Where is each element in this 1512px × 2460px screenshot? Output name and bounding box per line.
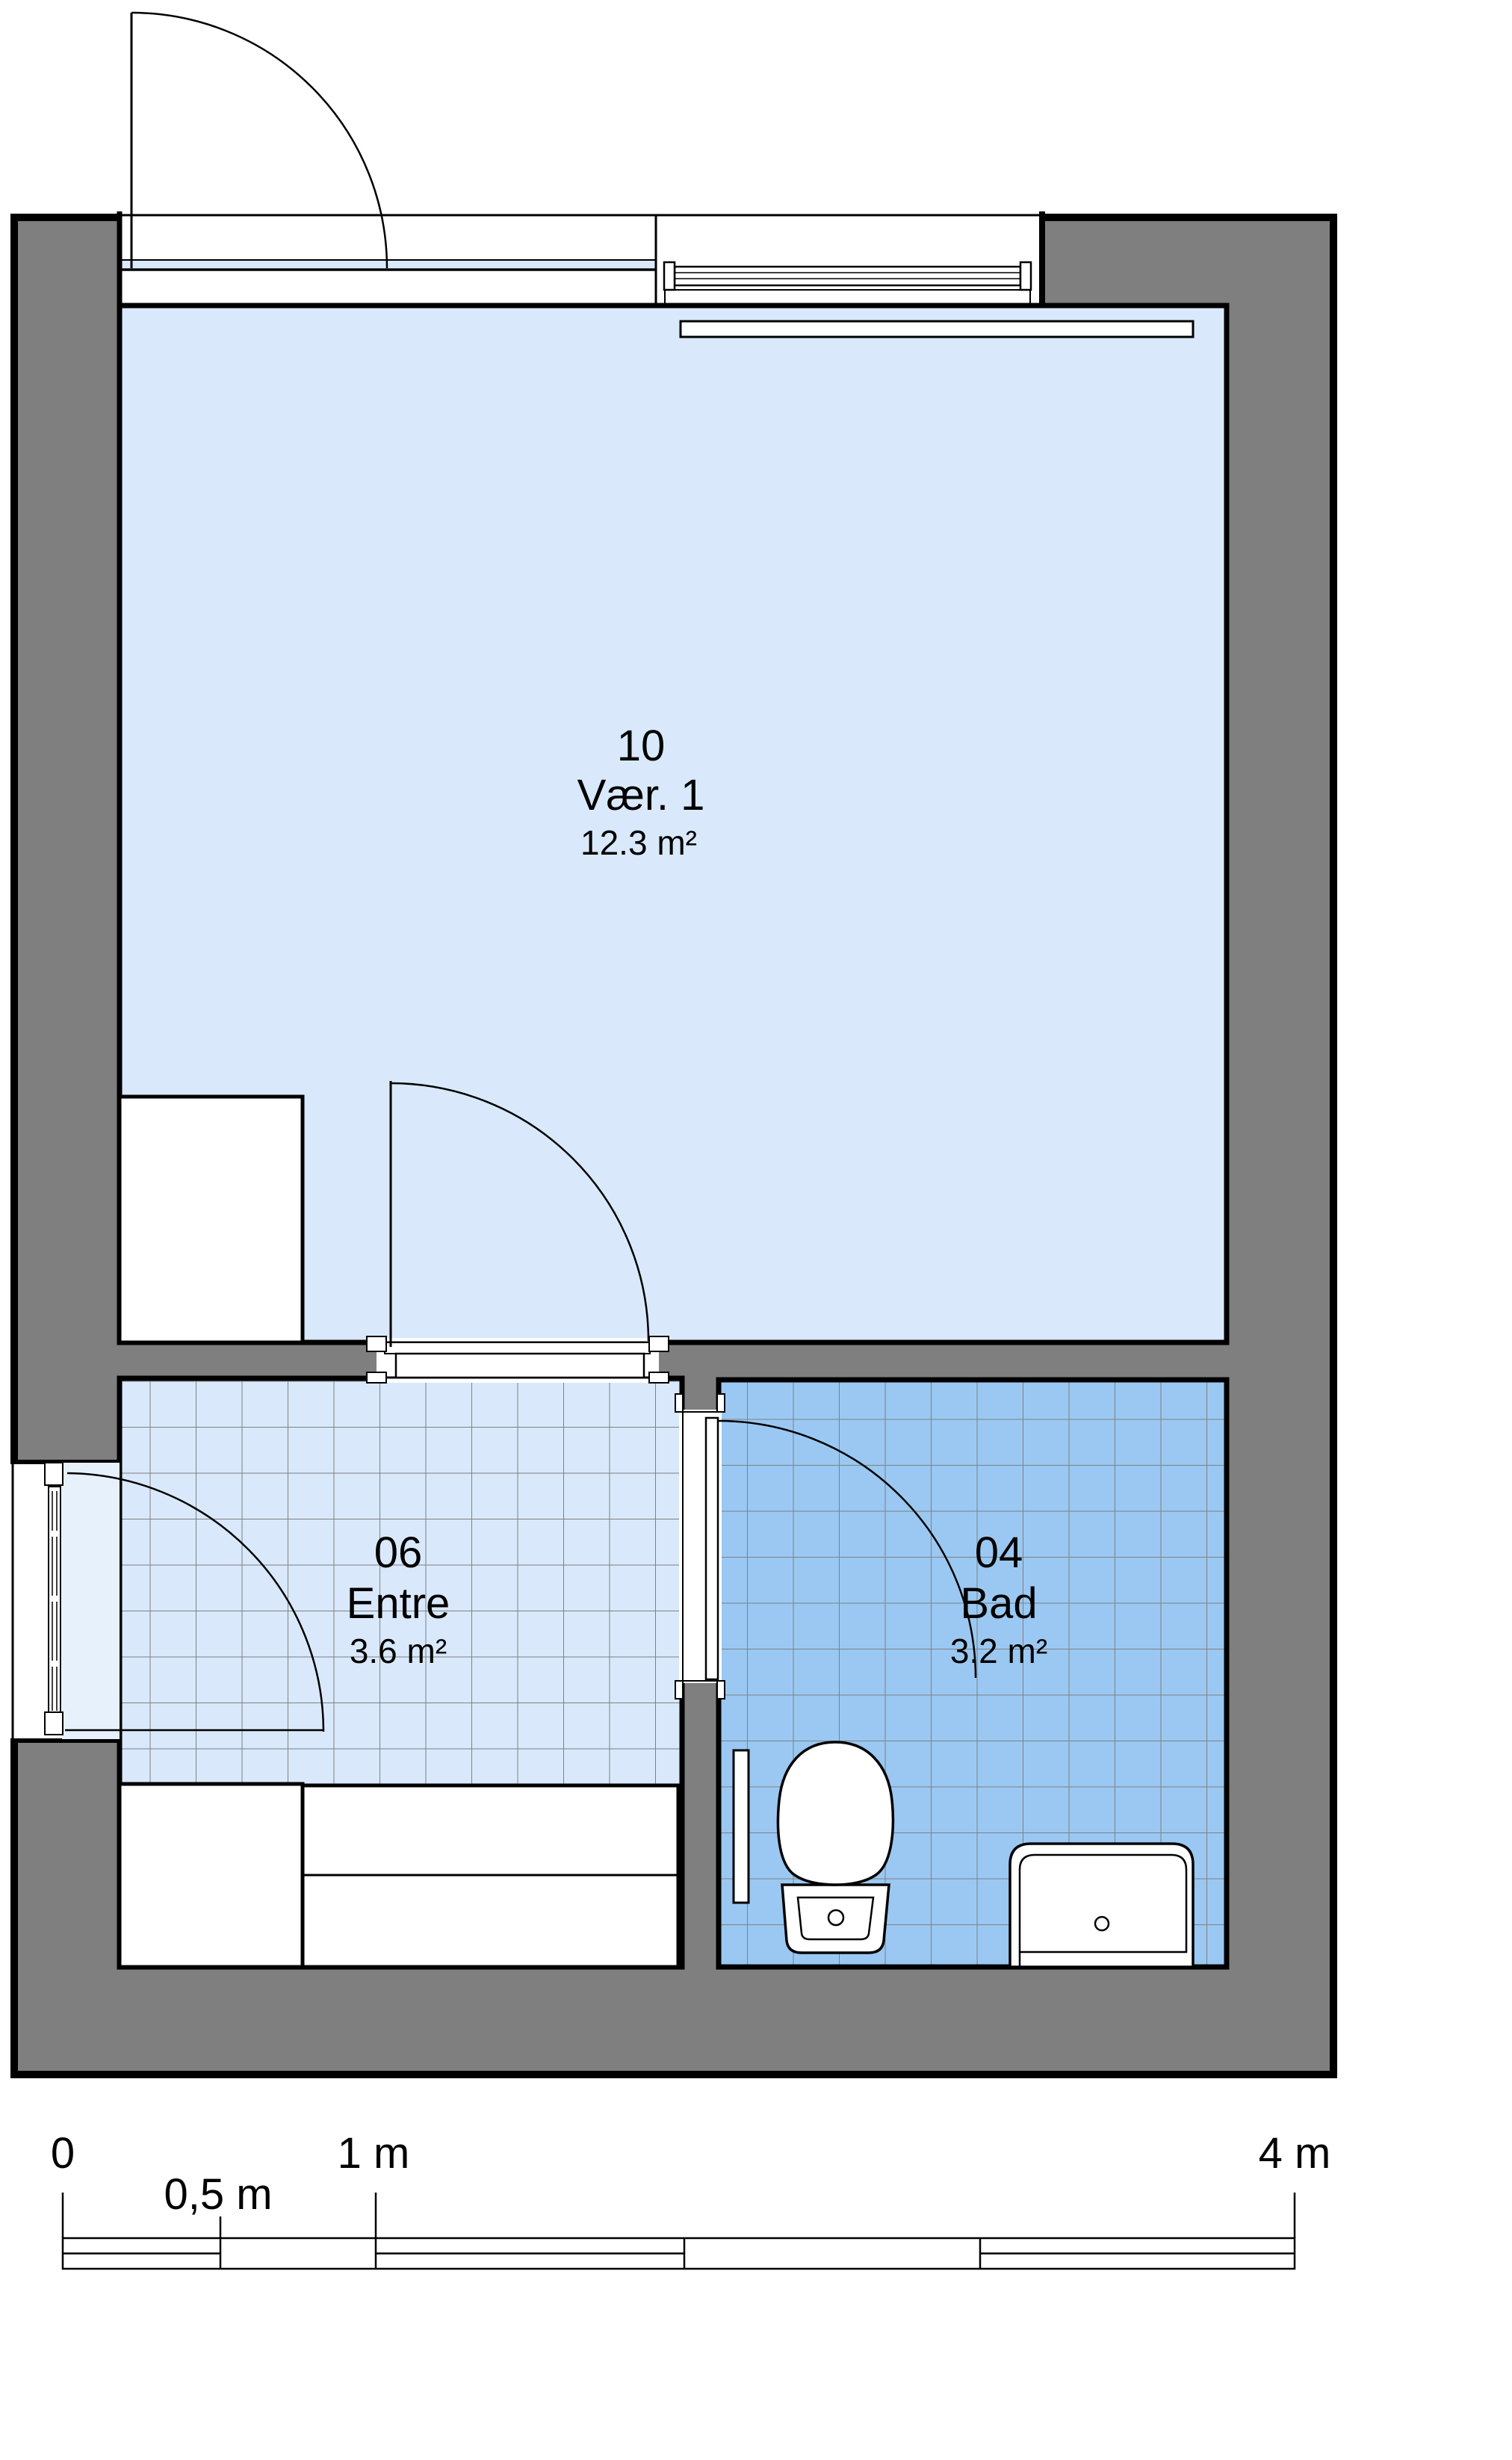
- room-bad-area: 3.2 m²: [950, 1632, 1047, 1670]
- room-bad-number: 04: [975, 1528, 1023, 1577]
- closet: [120, 1097, 303, 1342]
- floor-plan-page: 10 Vær. 1 12.3 m² 06 Entre 3.6 m² 04 Bad…: [0, 0, 1512, 2460]
- toilet-flush-button: [828, 1910, 843, 1925]
- room-entre-area: 3.6 m²: [350, 1632, 447, 1670]
- scale-bar: 0 0,5 m 1 m 4 m: [51, 2129, 1330, 2269]
- room-vaer1-number: 10: [617, 722, 666, 770]
- toilet-bowl: [778, 1742, 893, 1885]
- room-vaer1-area: 12.3 m²: [580, 823, 697, 862]
- toilet: [778, 1742, 893, 1953]
- washbasin: [1010, 1844, 1193, 1967]
- washbasin-drain: [1095, 1917, 1109, 1930]
- scale-label-05: 0,5 m: [164, 2170, 272, 2219]
- window-frame: [675, 267, 1020, 285]
- radiator: [681, 321, 1193, 337]
- scale-label-1: 1 m: [338, 2129, 410, 2178]
- entry-door-glazing: [49, 1487, 61, 1715]
- shower-panel: [734, 1750, 749, 1903]
- room-entre-name: Entre: [347, 1579, 450, 1628]
- floor-plan: 10 Vær. 1 12.3 m² 06 Entre 3.6 m² 04 Bad…: [0, 0, 1512, 2460]
- scale-label-0: 0: [51, 2129, 75, 2178]
- room-bad-name: Bad: [960, 1579, 1037, 1628]
- entry-threshold: [62, 1463, 120, 1739]
- room-entre-number: 06: [374, 1528, 423, 1577]
- storage-cabinet-left: [120, 1784, 303, 1967]
- window-top: [657, 210, 1042, 308]
- bathroom-door-leaf: [706, 1418, 718, 1679]
- room-vaer1-name: Vær. 1: [577, 771, 705, 820]
- storage-cabinet-right: [303, 1785, 678, 1967]
- scale-label-4: 4 m: [1259, 2129, 1331, 2178]
